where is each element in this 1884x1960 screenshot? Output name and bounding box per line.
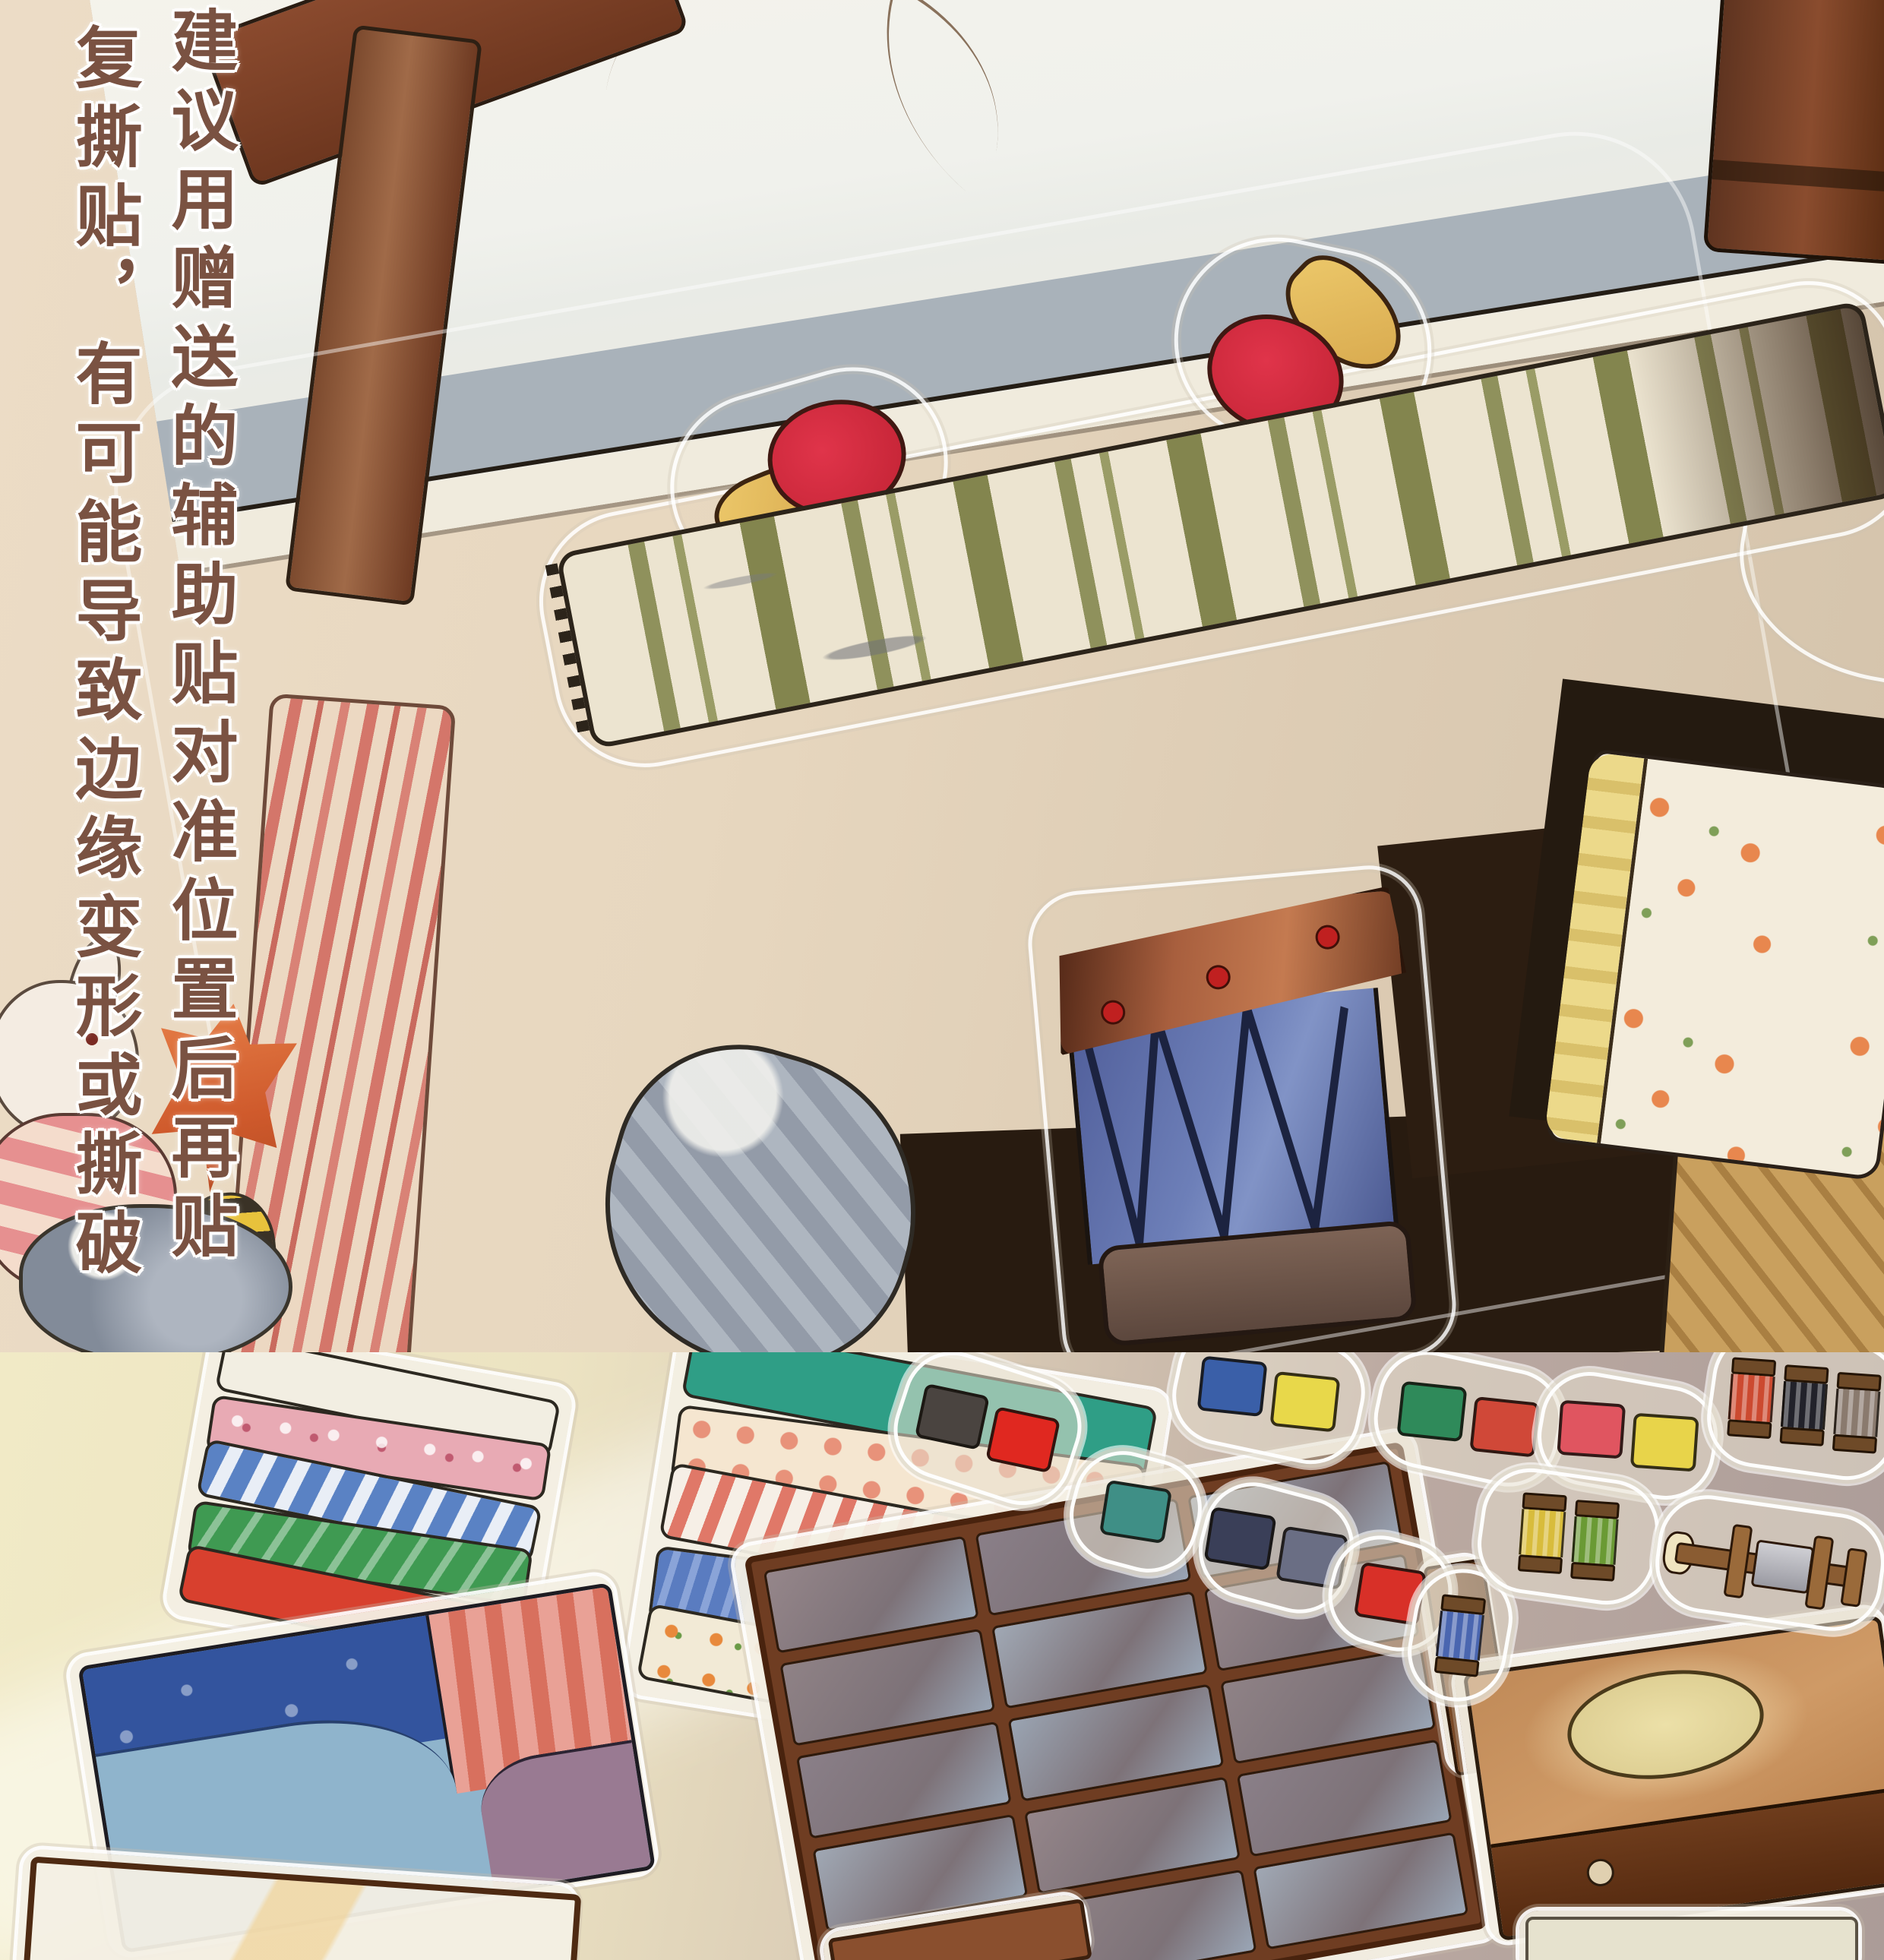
spool-part	[1832, 1434, 1877, 1454]
spool-part	[1522, 1492, 1566, 1512]
pale-panel	[1525, 1917, 1858, 1960]
spool-part	[1833, 1389, 1880, 1437]
bed-post-right-sticker	[1703, 0, 1884, 265]
floral-cloth-sticker	[1546, 748, 1884, 1181]
thread-spool-icon	[1570, 1499, 1620, 1581]
spool-part	[1728, 1374, 1775, 1422]
fabric-swatch-icon	[985, 1406, 1061, 1473]
thread-spool-icon	[1517, 1492, 1566, 1574]
spool-part	[1519, 1509, 1566, 1557]
spool-part	[1727, 1419, 1772, 1439]
fabric-swatch-icon	[1099, 1480, 1172, 1544]
spool-part	[1517, 1554, 1562, 1574]
winder-part	[1840, 1547, 1867, 1608]
spool-part	[1570, 1561, 1615, 1581]
fabric-swatch-icon	[1396, 1380, 1467, 1442]
spool-part	[1436, 1611, 1484, 1661]
winder-part	[1751, 1539, 1815, 1594]
thread-spool-icon	[1832, 1372, 1882, 1454]
dresser-art	[1463, 1615, 1884, 1941]
fabric-swatch-icon	[1354, 1561, 1427, 1626]
spool-part	[1781, 1381, 1828, 1430]
fabric-swatch-icon	[1204, 1506, 1277, 1571]
pale-partial-sticker	[1519, 1911, 1858, 1960]
instruction-text-line1: 建议用赠送的辅助贴对准位置后再贴	[166, 6, 232, 1313]
spools-red-black-taupe	[1705, 1352, 1884, 1482]
thread-winder-icon	[1671, 1509, 1870, 1618]
thread-spool-icon	[1434, 1594, 1487, 1677]
washi-scene-photo: 建议用赠送的辅助贴对准位置后再贴 复撕贴，有可能导致边缘变形或撕破	[0, 0, 1884, 1352]
spool-part	[1779, 1427, 1824, 1446]
fabric-swatch-icon	[1630, 1413, 1699, 1472]
sticker-sheet-photo	[0, 1352, 1884, 1960]
thread-spool-icon	[1727, 1357, 1776, 1439]
toy-drum-sticker	[1045, 886, 1427, 1351]
fabric-swatch-icon	[1197, 1356, 1268, 1418]
fabric-swatch-icon	[1269, 1371, 1340, 1433]
spool-part	[1574, 1499, 1619, 1519]
instruction-text-line2: 复撕贴，有可能导致边缘变形或撕破	[70, 23, 137, 1329]
product-photo-page: 建议用赠送的辅助贴对准位置后再贴 复撕贴，有可能导致边缘变形或撕破	[0, 0, 1884, 1960]
spool-part	[1571, 1516, 1618, 1564]
wooden-dresser-sticker	[1453, 1606, 1884, 1944]
thread-winder	[1653, 1494, 1884, 1633]
fabric-swatch-icon	[1557, 1400, 1626, 1459]
fabric-swatch-icon	[915, 1383, 990, 1450]
thread-spool-icon	[1779, 1364, 1829, 1446]
fabric-swatch-icon	[1469, 1396, 1540, 1457]
